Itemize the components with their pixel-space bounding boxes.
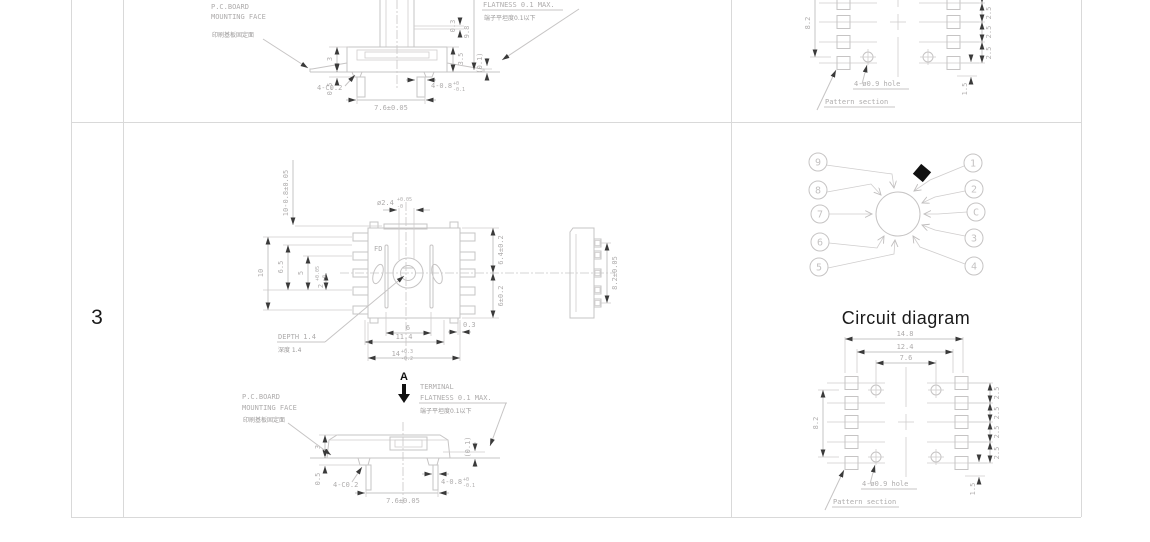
- pattern-section-label: Pattern section: [825, 98, 888, 106]
- dim-4-08: 4-0.8: [431, 82, 452, 90]
- dim-hole: ø2.4: [377, 199, 394, 207]
- dim-4-08-tol-dn: -0.1: [453, 87, 465, 93]
- dim-8-2: 8.2: [804, 17, 812, 30]
- dim-c10: 10: [257, 269, 265, 277]
- flatness-note: FLATNESS 0.1 MAX. 端子平坦度0.1以下: [482, 1, 579, 60]
- terminal-c: C: [973, 208, 979, 219]
- dim-bottom-76: 7.6±0.05: [386, 497, 420, 505]
- terminal-2: 2: [971, 185, 977, 196]
- drawing-pattern-section-bottom: 14.8 12.4 7.6 8.2 2.5 2.5 2.5 2.5 1.5: [795, 325, 1021, 521]
- hole-label: 4-ø0.9 hole: [854, 80, 900, 88]
- dim-bottom-08-dn: -0.1: [463, 483, 475, 489]
- dim-hole-tol-dn: -0: [397, 204, 403, 210]
- flatness-text: FLATNESS 0.1 MAX.: [483, 1, 555, 9]
- terminal-flatness-note: TERMINAL FLATNESS 0.1 MAX. 端子平坦度0.1以下: [419, 383, 507, 446]
- flatness-label-cn: 端子平坦度0.1以下: [420, 407, 472, 415]
- dim-side-82: 8.2±0.05: [611, 256, 619, 290]
- terminal-8: 8: [815, 186, 821, 197]
- drawing-main-views: FD 10-0.8±0.05 ø2.4 +0.05 -0 10 6.5: [123, 122, 731, 517]
- dim-shaft: 10-0.8±0.05: [282, 170, 290, 216]
- dim-pitch-2: 2.5: [993, 407, 1001, 420]
- dim-c2: 2: [317, 284, 325, 288]
- dim-pitch-4: 2.5: [993, 447, 1001, 460]
- drawing-row2-side-section: 3 0.5 4-C0.2 7.6±0.05 3.5 0.3 9.8: [123, 0, 731, 122]
- pcb-text-cn: 印刷基板固定面: [212, 31, 254, 39]
- dimensions: 3 0.5 4-C0.2 7.6±0.05 3.5 0.3 9.8: [317, 0, 492, 112]
- dim-hole-tol-up: +0.05: [397, 197, 412, 203]
- pattern-section-label: Pattern section: [833, 498, 896, 506]
- dim-4-c02: 4-C0.2: [317, 84, 342, 92]
- mounting-face-text-bottom: MOUNTING FACE: [242, 404, 297, 412]
- table-border-right: [1081, 0, 1082, 517]
- dim-bottom-08: 4-0.8: [441, 478, 462, 486]
- dim-b6: 6: [406, 324, 410, 332]
- pattern-labels: 4-ø0.9 hole Pattern section: [817, 65, 909, 110]
- drawing-pattern-section-top: 14.8 12.4 7.6 8.2 2.5 2.5 2.5: [787, 0, 1013, 121]
- pattern-labels: 4-ø0.9 hole Pattern section: [825, 465, 917, 510]
- terminal-9: 9: [815, 158, 821, 169]
- terminal-leaders: [826, 165, 967, 268]
- flatness-text-cn: 端子平坦度0.1以下: [484, 14, 536, 22]
- row-number: 3: [71, 306, 123, 330]
- dim-bottom-01: (0.1): [464, 436, 472, 457]
- pcb-text-cn-bottom: 印刷基板固定面: [243, 416, 285, 424]
- pads-and-holes: [827, 367, 987, 477]
- dim-7-6: 7.6: [900, 354, 913, 362]
- body-marking: FD: [374, 245, 382, 253]
- dim-b14-tol-dn: -0.2: [401, 356, 413, 362]
- dim-d03: 0.3: [463, 321, 476, 329]
- mounting-face-text: MOUNTING FACE: [211, 13, 266, 21]
- terminal-7: 7: [817, 210, 823, 221]
- dim-8-2: 8.2: [812, 417, 820, 430]
- rotor-position-marker: [913, 164, 931, 182]
- dim-1-5: 1.5: [969, 483, 977, 496]
- pattern-dimensions: 14.8 12.4 7.6 8.2 2.5 2.5 2.5 2.5 1.5: [812, 330, 1001, 495]
- dim-b14: 14: [392, 350, 400, 358]
- pcb-mounting-note: P.C.BOARD MOUNTING FACE 印刷基板固定面: [211, 3, 308, 68]
- dim-c2-tol-up: +0.05: [315, 266, 321, 281]
- bottom-view-dimensions: 3 0.5 4-C0.2 7.6±0.05 (0.1) 4-0.8 +0 -0.…: [314, 435, 475, 505]
- depth-label: DEPTH 1.4: [278, 333, 316, 341]
- dim-bottom-c02: 4-C0.2: [333, 481, 358, 489]
- pcb-board-text-bottom: P.C.BOARD: [242, 393, 280, 401]
- dim-14-8: 14.8: [897, 330, 914, 338]
- dim-c65: 6.5: [277, 261, 285, 274]
- pads-and-holes: [819, 0, 979, 77]
- dim-b14-tol-up: +0.3: [401, 349, 413, 355]
- dim-pitch-2: 2.5: [985, 7, 993, 20]
- dim-pitch-4: 2.5: [985, 47, 993, 60]
- terminal-label: TERMINAL: [420, 383, 454, 391]
- dim-r64: 6.4±0.2: [497, 235, 505, 265]
- main-view-dimensions: 10-0.8±0.05 ø2.4 +0.05 -0 10 6.5 5 2: [257, 160, 505, 362]
- terminal-4: 4: [971, 262, 977, 273]
- terminal-5: 5: [816, 263, 822, 274]
- drawing-circuit-diagram: 9 8 7 6 5 1 2 C 3 4: [731, 122, 1081, 309]
- dim-7-6: 7.6±0.05: [374, 104, 408, 112]
- dim-0-3: 0.3: [449, 20, 457, 33]
- row2-pattern-cell: 14.8 12.4 7.6 8.2 2.5 2.5 2.5: [731, 0, 1080, 121]
- terminals: 9 8 7 6 5 1 2 C 3 4: [809, 153, 985, 276]
- dim-pitch-1: 2.5: [993, 387, 1001, 400]
- dim-0-1: (0.1): [476, 52, 484, 73]
- flatness-label: FLATNESS 0.1 MAX.: [420, 394, 492, 402]
- hole-label: 4-ø0.9 hole: [862, 480, 908, 488]
- view-a-label: A: [400, 371, 408, 383]
- dim-3-5: 3.5: [457, 53, 465, 66]
- dim-bottom-05: 0.5: [314, 473, 322, 486]
- dim-c2-tol-dn: -0: [322, 275, 328, 281]
- terminal-6: 6: [817, 238, 823, 249]
- bottom-side-view: [310, 422, 500, 504]
- terminal-1: 1: [970, 159, 976, 170]
- dim-c5: 5: [297, 271, 305, 275]
- dim-9-8: 9.8: [463, 26, 471, 39]
- datasheet-page: 3: [0, 0, 1150, 542]
- depth-label-cn: 深度 1.4: [278, 346, 302, 354]
- terminal-3: 3: [971, 234, 977, 245]
- dim-r6: 6±0.2: [497, 285, 505, 306]
- dim-3: 3: [326, 57, 334, 61]
- dim-1-5: 1.5: [961, 83, 969, 96]
- table-border-left: [71, 0, 72, 517]
- dim-pitch-3: 2.5: [993, 426, 1001, 439]
- dim-b114: 11.4: [396, 333, 413, 341]
- shaft-and-body-outline: [310, 0, 500, 97]
- dim-12-4: 12.4: [897, 343, 914, 351]
- view-a-arrow: A: [398, 371, 410, 403]
- pcb-board-text: P.C.BOARD: [211, 3, 249, 11]
- dim-pitch-3: 2.5: [985, 26, 993, 39]
